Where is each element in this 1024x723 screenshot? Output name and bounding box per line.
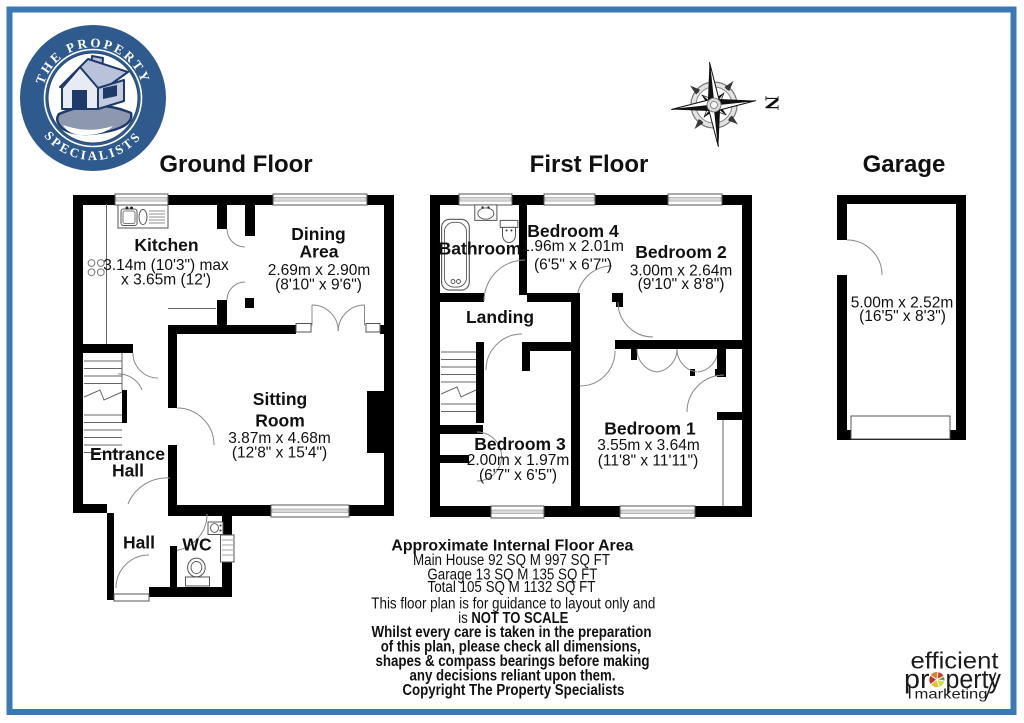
svg-text:(12'8" x 15'4"): (12'8" x 15'4")	[232, 445, 327, 462]
svg-text:WC: WC	[182, 535, 212, 555]
svg-text:1.96m x 2.01m: 1.96m x 2.01m	[521, 238, 624, 255]
svg-text:N: N	[761, 96, 783, 111]
svg-text:Room: Room	[255, 411, 305, 431]
svg-text:Total 105 SQ M 1132 SQ FT: Total 105 SQ M 1132 SQ FT	[428, 579, 596, 596]
svg-text:marketing: marketing	[915, 685, 988, 701]
svg-text:Copyright The Property Special: Copyright The Property Specialists	[402, 682, 624, 699]
svg-text:Bedroom 3: Bedroom 3	[474, 434, 566, 454]
svg-text:Hall: Hall	[112, 461, 144, 481]
svg-text:Bathroom: Bathroom	[439, 239, 522, 259]
svg-text:Hall: Hall	[123, 533, 155, 553]
svg-text:Sitting: Sitting	[253, 389, 307, 409]
svg-text:(6'7" x 6'5"): (6'7" x 6'5")	[479, 467, 557, 484]
svg-text:Bedroom 1: Bedroom 1	[604, 419, 696, 439]
svg-text:First Floor: First Floor	[530, 151, 649, 178]
svg-text:(11'8" x 11'11"): (11'8" x 11'11")	[598, 453, 699, 470]
svg-text:Area: Area	[300, 242, 339, 262]
svg-text:Kitchen: Kitchen	[134, 235, 198, 255]
svg-text:(8'10" x 9'6"): (8'10" x 9'6")	[275, 277, 362, 294]
svg-text:Landing: Landing	[466, 307, 534, 327]
svg-text:Bedroom 2: Bedroom 2	[635, 242, 727, 262]
svg-text:(16'5" x 8'3"): (16'5" x 8'3")	[859, 308, 946, 325]
svg-text:(6'5" x 6'7"): (6'5" x 6'7")	[534, 257, 612, 274]
svg-text:x 3.65m (12'): x 3.65m (12')	[121, 272, 211, 289]
svg-text:Ground Floor: Ground Floor	[159, 151, 312, 178]
svg-text:Garage: Garage	[863, 151, 946, 178]
svg-text:(9'10" x 8'8"): (9'10" x 8'8")	[638, 276, 725, 293]
svg-text:3.55m x 3.64m: 3.55m x 3.64m	[597, 437, 700, 454]
